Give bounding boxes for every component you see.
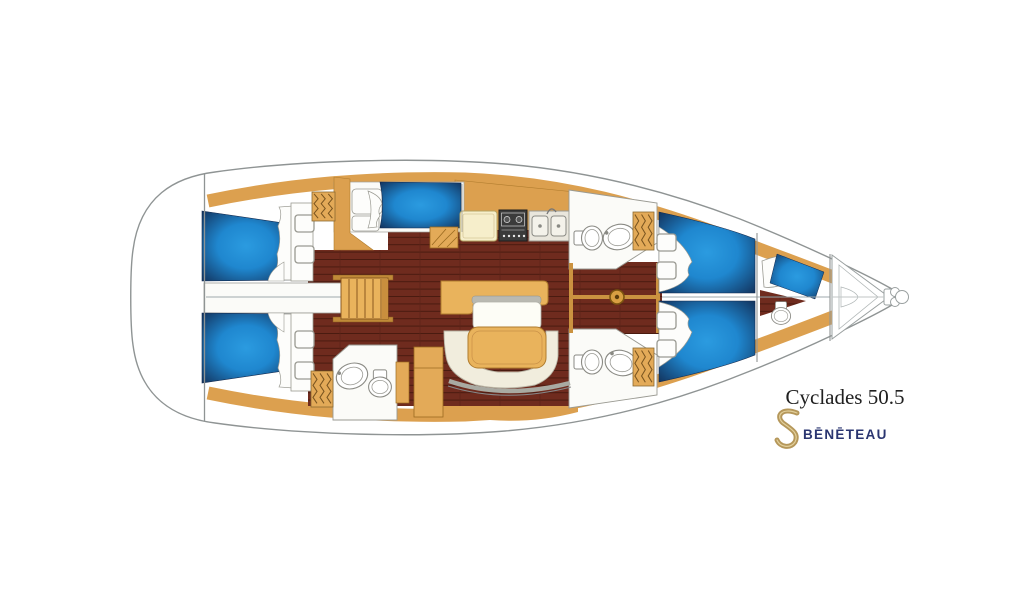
chart-table: [430, 227, 458, 248]
deck-hatch: [657, 262, 676, 279]
stove: [499, 210, 527, 241]
salon-step-strip: [396, 362, 409, 403]
deck-hatch: [295, 215, 314, 232]
corridor-door-frame: [569, 263, 573, 333]
brand-label: BĒNĒTEAU: [803, 427, 888, 442]
deck-hatch: [295, 331, 314, 348]
deck-hatch: [657, 312, 676, 329]
salon-cabinet: [414, 347, 443, 417]
salon-table: [468, 327, 546, 368]
double-sink: [529, 209, 570, 241]
deck-hatch: [657, 340, 676, 357]
floorplan-page: Cyclades 50.5 BĒNĒTEAU: [0, 0, 1024, 600]
companionway-steps: [333, 275, 393, 322]
deck-hatch: [657, 234, 676, 251]
table-leaf: [473, 302, 541, 329]
counter-top: [460, 211, 497, 241]
aft-corridor: [204, 283, 344, 313]
yacht-floorplan: Cyclades 50.5 BĒNĒTEAU: [0, 0, 1024, 600]
model-label: Cyclades 50.5: [786, 385, 905, 409]
galley: [460, 209, 570, 241]
mast-step: [610, 290, 624, 304]
double-berth: [380, 182, 461, 228]
deck-hatch: [295, 246, 314, 263]
